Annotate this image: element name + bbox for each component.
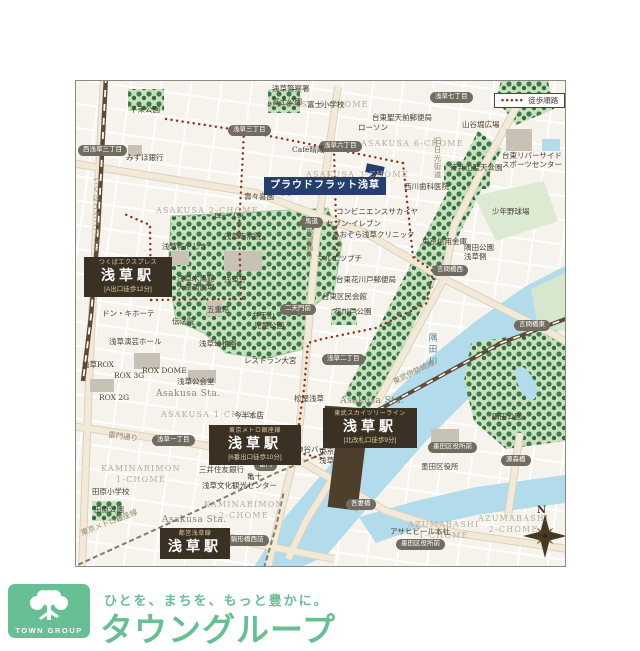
town-group-logo: TOWN GROUP [8, 584, 90, 638]
station-line-name: 東京メトロ銀座線 [211, 427, 299, 436]
property-callout: プラウドフラット浅草 [264, 177, 386, 195]
station-line-name: 都営浅草線 [162, 530, 228, 539]
town-group-logo-text: TOWN GROUP [8, 626, 90, 635]
footer-company-name: タウングループ [100, 603, 336, 651]
station-line-name: つくばエクスプレス [86, 259, 170, 268]
fuji-park [268, 89, 300, 113]
route-legend-label: 徒歩順路 [528, 97, 558, 105]
station-exit-info: [6番出口徒歩10分] [211, 453, 299, 462]
route-dots-icon: ••••• [501, 96, 524, 105]
station-line-name: 東武スカイツリーライン [325, 410, 415, 419]
station-badge: 都営浅草線浅草駅 [160, 528, 230, 559]
station-badge: つくばエクスプレス浅草駅[A出口徒歩12分] [84, 257, 172, 297]
ballfield [474, 181, 558, 241]
route-legend: ••••• 徒歩順路 [494, 93, 565, 108]
sumida-park-east [464, 331, 565, 449]
station-badge: 東武スカイツリーライン浅草駅[北改札口徒歩9分] [323, 408, 417, 448]
tree-icon [23, 588, 75, 624]
station-exit-info: [A出口徒歩12分] [86, 285, 170, 294]
hanakawado-park [331, 309, 357, 325]
station-name: 浅草駅 [86, 268, 170, 285]
station-exit-info: [北改札口徒歩9分] [325, 436, 415, 445]
station-badge: 東京メトロ銀座線浅草駅[6番出口徒歩10分] [209, 425, 301, 465]
station-name: 浅草駅 [325, 419, 415, 436]
map-frame: 西浅草三丁目浅草三丁目浅草六丁目浅草七丁目浅草二丁目馬道二天門前浅草一丁目雷門駒… [75, 80, 566, 567]
map-graphics [76, 81, 565, 566]
station-name: 浅草駅 [211, 436, 299, 453]
tawara-park [92, 501, 122, 521]
chitose-park [128, 89, 164, 111]
station-name: 浅草駅 [162, 539, 228, 556]
pool [542, 139, 560, 151]
